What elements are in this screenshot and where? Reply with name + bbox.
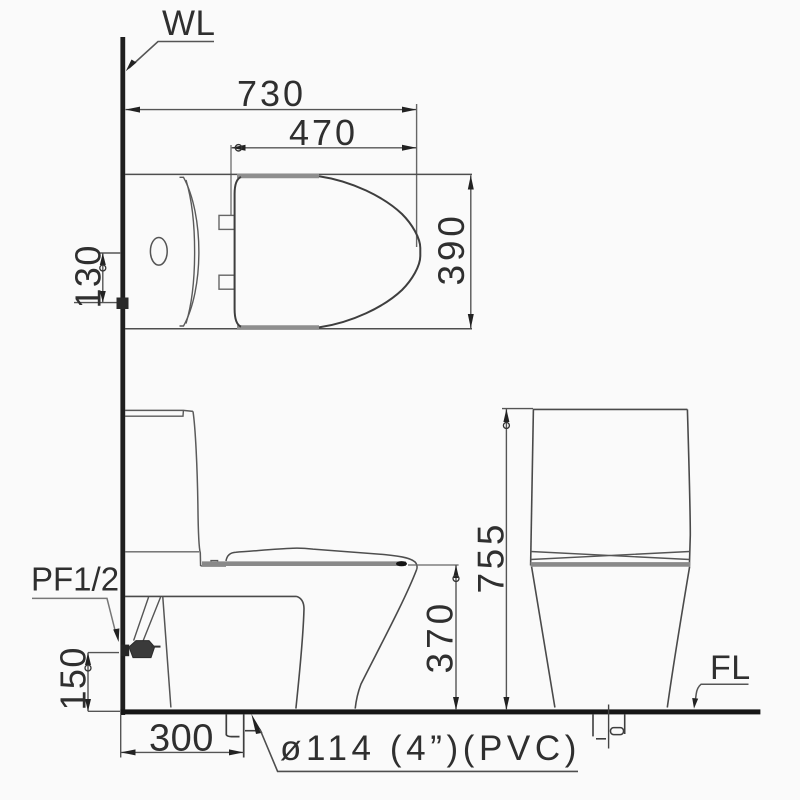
svg-text:WL: WL	[162, 4, 216, 43]
svg-text:PF1/2: PF1/2	[31, 561, 119, 598]
svg-text:730: 730	[237, 73, 306, 114]
svg-text:150: 150	[53, 646, 94, 710]
svg-text:370: 370	[420, 600, 461, 674]
svg-text:390: 390	[431, 212, 472, 285]
svg-text:470: 470	[289, 112, 358, 153]
svg-text:300: 300	[149, 718, 214, 760]
svg-text:ø114 (4”)(PVC): ø114 (4”)(PVC)	[280, 729, 581, 768]
svg-text:130: 130	[68, 244, 109, 308]
svg-text:FL: FL	[710, 649, 751, 687]
svg-text:755: 755	[471, 521, 512, 594]
